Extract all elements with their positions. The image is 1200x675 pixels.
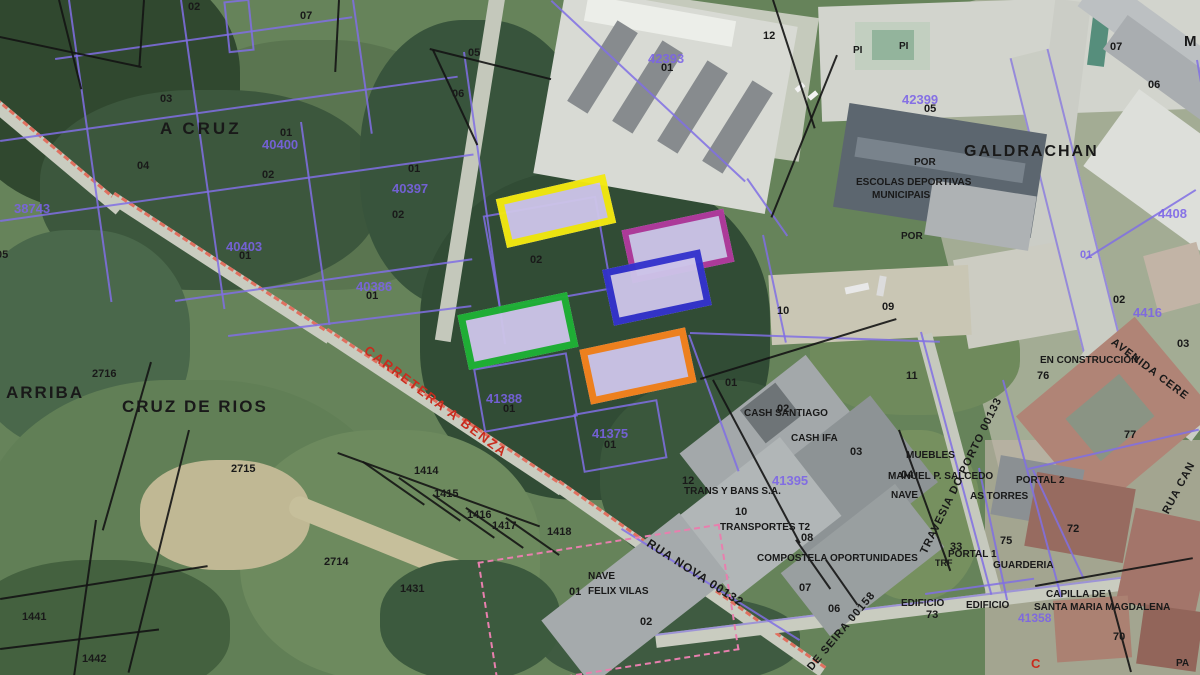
facility-pa: PA <box>1176 659 1189 669</box>
facility-nave: NAVE <box>588 572 615 582</box>
lot-number: M <box>1184 34 1197 49</box>
lot-number: 02 <box>262 170 274 181</box>
highlighted-parcel-yellow[interactable] <box>496 174 616 248</box>
facility-escolas: MUNICIPAIS <box>872 191 930 201</box>
lot-number: 01 <box>503 404 515 415</box>
parcel-id: 01 <box>1080 250 1092 261</box>
facility-en-construccion: EN CONSTRUCCIÓN <box>1040 356 1138 366</box>
facility-pool: PI <box>899 42 908 52</box>
facility-trans-y-bans: TRANS Y BANS S.A. <box>684 487 781 497</box>
lot-number: 06 <box>452 89 464 100</box>
facility-muebles: MUEBLES <box>906 451 955 461</box>
facility-por: POR <box>914 158 936 168</box>
street-de-seira-00158: DE SEIRA 00158 <box>806 590 878 673</box>
lot-number: 2716 <box>92 369 116 380</box>
parcel-id: 4416 <box>1133 306 1162 319</box>
facility-trf: TRF <box>935 559 953 568</box>
lot-number: 2715 <box>231 464 255 475</box>
lot-number: 1414 <box>414 466 438 477</box>
facility-compostela: COMPOSTELA OPORTUNIDADES <box>757 554 918 564</box>
lot-number: 77 <box>1124 430 1136 441</box>
lot-number: 1441 <box>22 612 46 623</box>
aerial-cadastral-map[interactable]: A CRUZGALDRACHANCRUZ DE RIOSARRIBACARRET… <box>0 0 1200 675</box>
lot-number: 10 <box>777 306 789 317</box>
place-a-cruz: A CRUZ <box>160 120 242 137</box>
lot-number: 04 <box>901 470 913 481</box>
parcel-id: 40397 <box>392 182 428 195</box>
lot-number: 05 <box>924 104 936 115</box>
lot-number: 1415 <box>434 489 458 500</box>
street-rua-can: RUA CAN <box>1161 460 1198 516</box>
facility-as-torres: AS TORRES <box>970 492 1028 502</box>
facility-edificio: EDIFICIO <box>966 601 1009 611</box>
highlighted-parcel-orange[interactable] <box>579 327 696 404</box>
facility-escolas: ESCOLAS DEPORTIVAS <box>856 178 971 188</box>
lot-number: 12 <box>682 476 694 487</box>
lot-number: 1442 <box>82 654 106 665</box>
facility-pool: PI <box>853 46 862 56</box>
lot-number: 11 <box>906 371 918 382</box>
street-rua-nova-00132: RUA NOVA 00132 <box>645 537 746 609</box>
lot-number: 02 <box>777 404 789 415</box>
lot-number: 72 <box>1067 524 1079 535</box>
lot-number: 02 <box>1113 295 1125 306</box>
lot-number: 03 <box>160 94 172 105</box>
lot-number: 02 <box>392 210 404 221</box>
lot-number: 12 <box>763 31 775 42</box>
lot-number: 02 <box>640 617 652 628</box>
parcel-highlight-layer: A CRUZGALDRACHANCRUZ DE RIOSARRIBACARRET… <box>0 0 1200 675</box>
lot-number: 07 <box>1110 42 1122 53</box>
lot-number: 01 <box>280 128 292 139</box>
lot-number: 05 <box>0 250 8 261</box>
lot-number: 01 <box>366 291 378 302</box>
lot-number: 10 <box>735 507 747 518</box>
lot-number: 75 <box>1000 536 1012 547</box>
facility-transportes-t2: TRANSPORTES T2 <box>720 523 810 533</box>
lot-number: 07 <box>300 11 312 22</box>
street-red-partial: C <box>1031 657 1040 670</box>
facility-edificio: EDIFICIO <box>901 599 944 609</box>
facility-guarderia: GUARDERIA <box>993 561 1054 571</box>
lot-number: 1417 <box>492 521 516 532</box>
lot-number: 09 <box>882 302 894 313</box>
lot-number: 03 <box>850 447 862 458</box>
lot-number: 01 <box>661 63 673 74</box>
lot-number: 1416 <box>467 510 491 521</box>
lot-number: 05 <box>468 48 480 59</box>
lot-number: 01 <box>408 164 420 175</box>
parcel-id: 38743 <box>14 202 50 215</box>
facility-por: POR <box>901 232 923 242</box>
lot-number: 02 <box>188 2 200 13</box>
place-cruz-de-rios: CRUZ DE RIOS <box>122 398 268 415</box>
lot-number: 02 <box>530 255 542 266</box>
lot-number: 1418 <box>547 527 571 538</box>
lot-number: 07 <box>799 583 811 594</box>
lot-number: 08 <box>801 533 813 544</box>
parcel-id: 41358 <box>1018 612 1051 624</box>
facility-nave: NAVE <box>891 491 918 501</box>
highlighted-parcel-green[interactable] <box>457 292 578 370</box>
parcel-id: 40400 <box>262 138 298 151</box>
parcel-id: 4408 <box>1158 207 1187 220</box>
lot-number: 76 <box>1037 371 1049 382</box>
facility-capilla: CAPILLA DE <box>1046 590 1106 600</box>
lot-number: 2714 <box>324 557 348 568</box>
lot-number: 01 <box>725 378 737 389</box>
lot-number: 01 <box>569 587 581 598</box>
lot-number: 73 <box>926 610 938 621</box>
facility-capilla: SANTA MARIA MAGDALENA <box>1034 603 1170 613</box>
lot-number: 04 <box>137 161 149 172</box>
place-arriba: ARRIBA <box>6 384 84 401</box>
highlighted-parcel-blue[interactable] <box>602 249 712 326</box>
facility-cash-ifa: CASH IFA <box>791 434 838 444</box>
lot-number: 01 <box>604 440 616 451</box>
facility-felix-vilas: FELIX VILAS <box>588 587 649 597</box>
lot-number: 33 <box>950 542 962 553</box>
lot-number: 01 <box>239 251 251 262</box>
place-galdrachan: GALDRACHAN <box>964 144 1099 160</box>
lot-number: 06 <box>828 604 840 615</box>
lot-number: 03 <box>1177 339 1189 350</box>
lot-number: 70 <box>1113 632 1125 643</box>
facility-portal-2: PORTAL 2 <box>1016 476 1065 486</box>
lot-number: 06 <box>1148 80 1160 91</box>
lot-number: 1431 <box>400 584 424 595</box>
